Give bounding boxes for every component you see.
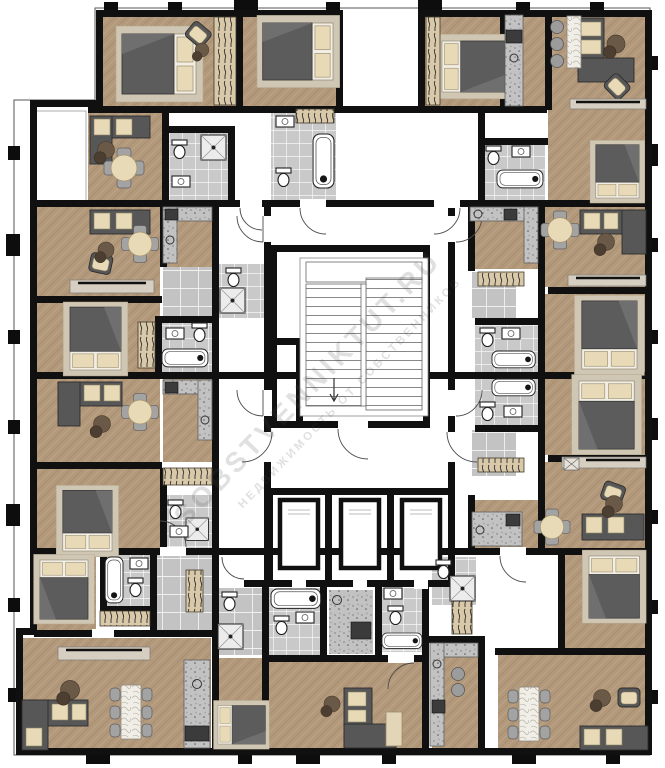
armchair xyxy=(618,688,640,707)
shower xyxy=(201,135,226,160)
bed xyxy=(436,34,510,99)
sink xyxy=(504,406,522,417)
sofa xyxy=(580,726,648,750)
balcony-rail xyxy=(34,111,86,201)
elevator-bank xyxy=(280,500,440,589)
sink xyxy=(384,588,402,599)
bar-table xyxy=(567,16,581,68)
bathtub xyxy=(313,134,334,188)
sink xyxy=(130,558,148,569)
tv-bench xyxy=(70,280,154,293)
bar-stool xyxy=(452,684,465,697)
elevator-door xyxy=(292,578,306,589)
sink xyxy=(276,116,294,127)
dining-table xyxy=(110,685,152,739)
sink xyxy=(512,146,530,157)
cabinet xyxy=(386,712,402,746)
tv-bench xyxy=(570,99,646,109)
floor-plan-canvas: SOBSTVENNIKTUT.RU НЕДВИЖИМОСТЬ ОТ СОБСТВ… xyxy=(0,0,665,768)
bed xyxy=(63,302,128,376)
dining-table xyxy=(508,687,550,741)
elevator-door xyxy=(414,578,428,589)
tv-bench xyxy=(568,275,646,286)
shower xyxy=(220,288,245,313)
bed xyxy=(214,700,270,749)
bed xyxy=(590,140,645,203)
shower xyxy=(218,624,243,649)
bed xyxy=(572,375,642,455)
bar-stool xyxy=(551,38,564,51)
bathtub xyxy=(382,633,422,649)
bed xyxy=(582,550,646,623)
floor-plan-page: SOBSTVENNIKTUT.RU НЕДВИЖИМОСТЬ ОТ СОБСТВ… xyxy=(0,0,665,768)
sink xyxy=(502,328,520,339)
bathtub xyxy=(492,379,535,396)
bar-stool xyxy=(452,668,465,681)
bathtub xyxy=(492,351,535,368)
bed xyxy=(574,295,644,375)
entry-hall-floor xyxy=(157,555,212,632)
bed xyxy=(34,554,95,624)
sink xyxy=(172,176,190,187)
sink xyxy=(166,328,184,339)
tv-bench xyxy=(58,647,150,660)
bar-stool xyxy=(551,55,564,68)
bathtub xyxy=(105,557,123,603)
bathtub xyxy=(162,349,208,367)
bathtub xyxy=(497,170,543,188)
sink xyxy=(296,612,314,623)
bed xyxy=(56,485,118,556)
bed xyxy=(257,15,340,87)
sofa xyxy=(582,514,644,540)
tv-bench xyxy=(562,457,646,470)
shower xyxy=(450,576,475,601)
bathtub xyxy=(271,589,321,608)
entry-hall-floor xyxy=(163,267,212,317)
elevator-door xyxy=(353,578,367,589)
bar-stool xyxy=(551,21,564,34)
